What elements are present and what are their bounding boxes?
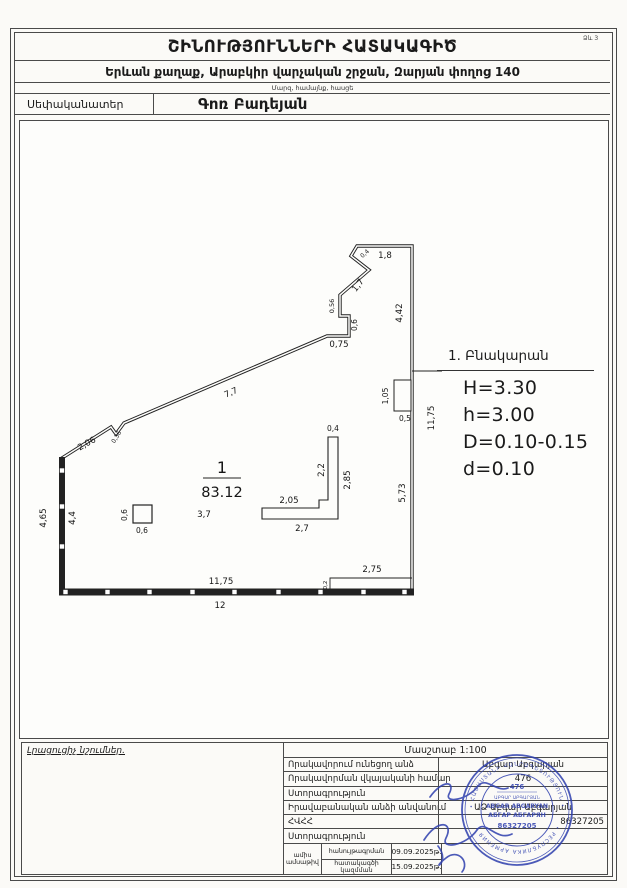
stamp-name-cyrillic: АБГАР АБГАРЯН	[488, 812, 546, 819]
signature-flourish	[438, 846, 465, 872]
stamp-id-number: 86327205	[498, 822, 537, 830]
stamp-name-latin: ABGAR ABGARYAN	[486, 803, 548, 810]
stamp-name-armenian: ԱԲԳԱՐ ԱԲԳԱՐՅԱՆ	[494, 795, 540, 801]
scanned-floor-plan-document: ՇԻՆՈՒԹՅՈՒՆՆԵՐԻ ՀԱՏԱԿԱԳԻԾ Ձև 3 Երևան քաղա…	[0, 0, 627, 888]
stamp-reg-number: 476	[510, 783, 525, 791]
official-stamp: • ՀԱՅԱՍՏԱՆԻ ՀԱՆՐԱՊԵՏՈՒԹՅՈՒՆ • • РЕСПУБЛИ…	[0, 0, 627, 888]
